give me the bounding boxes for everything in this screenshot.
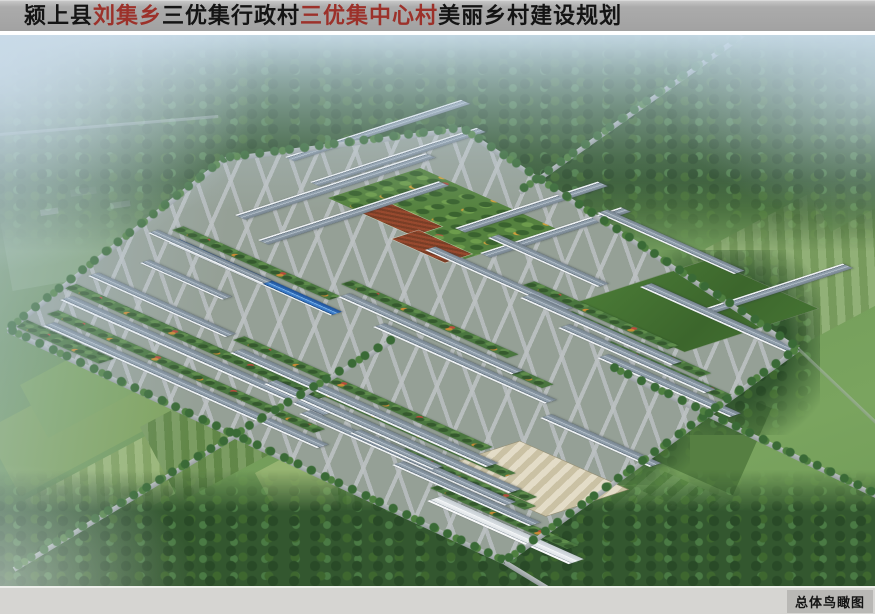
view-caption-badge: 总体鸟瞰图 [787,590,873,613]
aerial-rendering [0,35,875,586]
title-segment: 颍上县 [24,3,93,28]
title-bar: 颍上县刘集乡三优集行政村三优集中心村美丽乡村建设规划 [0,0,875,31]
title-segment: 三优集行政村 [162,3,300,28]
title-segment-highlight: 三优集中心村 [300,3,438,28]
page-title: 颍上县刘集乡三优集行政村三优集中心村美丽乡村建设规划 [24,1,622,32]
page: 颍上县刘集乡三优集行政村三优集中心村美丽乡村建设规划 总体鸟瞰图 [0,0,875,614]
rendering-layers [0,35,875,586]
footer-bar: 总体鸟瞰图 [0,586,875,614]
title-segment: 美丽乡村建设规划 [438,3,622,28]
title-segment-highlight: 刘集乡 [93,3,162,28]
